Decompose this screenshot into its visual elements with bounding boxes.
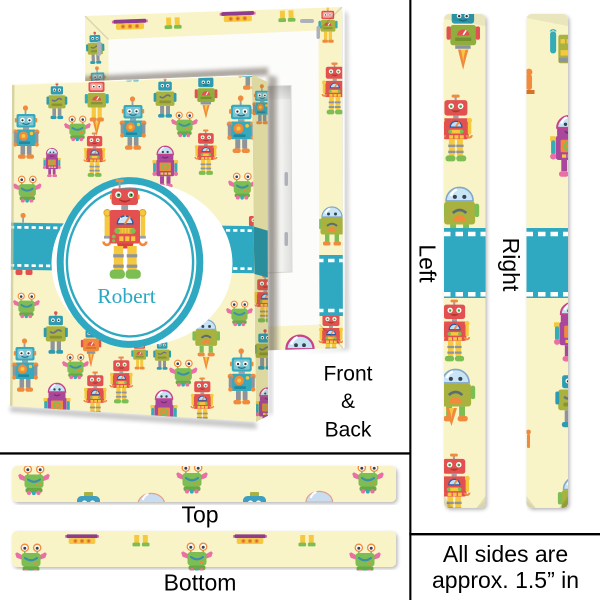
svg-text:&: & [341,390,355,413]
svg-text:Back: Back [325,419,372,442]
svg-text:Robert: Robert [97,284,156,308]
svg-text:All sides are: All sides are [443,541,568,567]
svg-text:Right: Right [498,238,524,292]
svg-text:Left: Left [414,244,440,283]
svg-text:Bottom: Bottom [164,570,237,596]
svg-text:Front: Front [323,363,372,386]
svg-text:approx. 1.5” in: approx. 1.5” in [432,567,579,593]
svg-text:Top: Top [181,502,218,528]
